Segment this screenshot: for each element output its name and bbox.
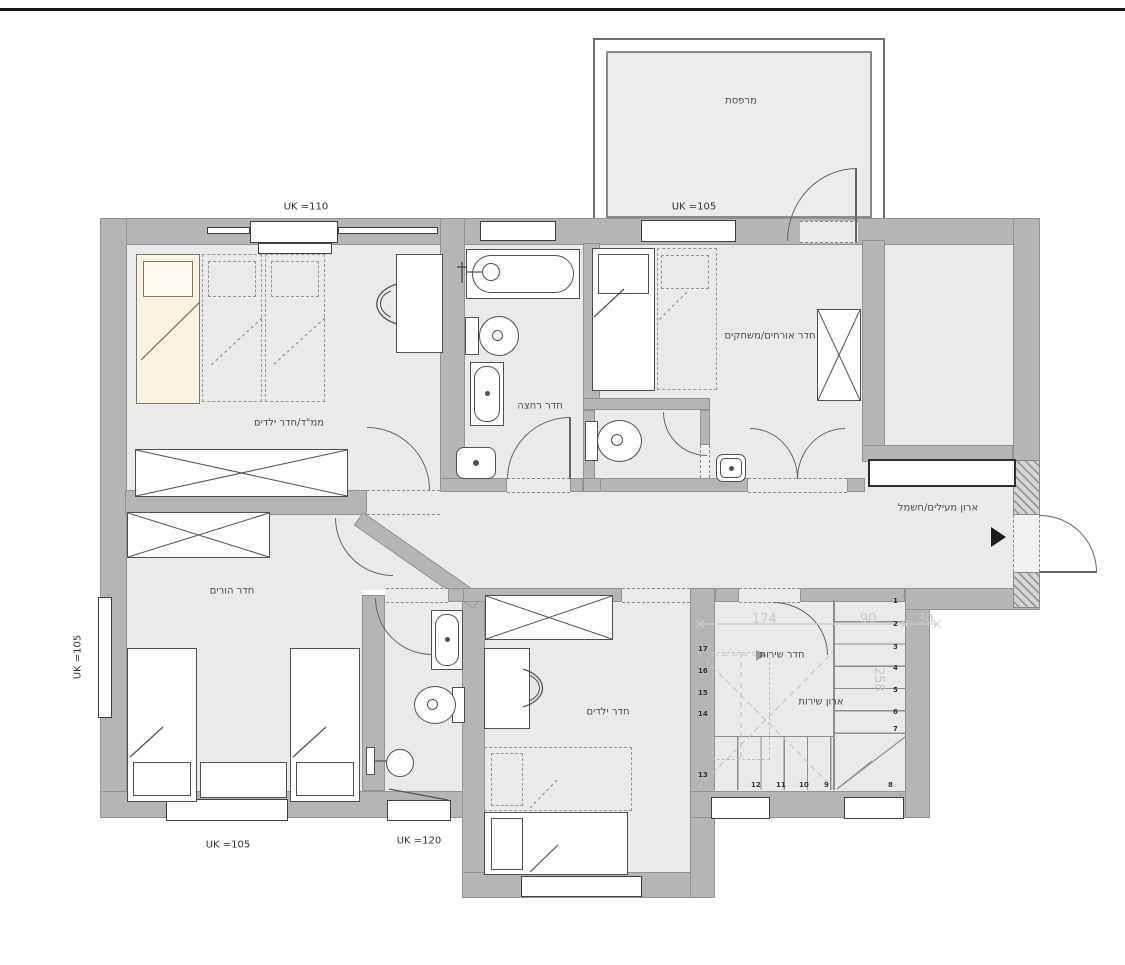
opening-utility-door	[739, 588, 800, 603]
door-leaf-bathroom-top	[569, 417, 571, 479]
window-parents-left	[98, 597, 112, 718]
label-utility-closet: ארון שירות	[798, 697, 843, 708]
stair-number: 3	[893, 643, 898, 651]
sill-label-balcony: UK =105	[672, 202, 717, 213]
dashed-pillow-guest	[661, 255, 709, 289]
sill-label-parents-bottom: UK =105	[206, 840, 251, 851]
wall-kids-left	[462, 600, 485, 898]
toilet-top-dot	[492, 330, 503, 341]
toilet-top-tank	[465, 317, 479, 355]
room-label-balcony: מרפסת	[725, 96, 757, 107]
sill-label-safe-room: UK =110	[284, 202, 329, 213]
shower-tub-top-dot	[485, 391, 490, 396]
stair-number: 17	[698, 645, 708, 653]
room-label-utility-room: חדר שירות	[759, 650, 804, 661]
sink-hallway-dot	[473, 460, 479, 466]
desk-safe-room	[396, 254, 443, 353]
pillow-safe-room	[143, 261, 193, 297]
window-stairs-right	[844, 797, 904, 819]
bathtub-top-faucet	[482, 263, 500, 281]
stair-number: 11	[776, 781, 786, 789]
wall-hatch-above-entry	[1013, 460, 1040, 515]
label-coat-closet: ארון מעילים/חשמל	[898, 503, 978, 514]
wall-bath-bottom-doorstub	[448, 588, 464, 602]
stair-number: 14	[698, 710, 708, 718]
pillow-parents-left	[133, 762, 191, 796]
stair-number: 16	[698, 667, 708, 675]
utility-closet-dashed	[712, 652, 770, 760]
dim-text-174: 174	[752, 612, 777, 627]
stair-number: 4	[893, 664, 898, 672]
pillow-parents-right	[296, 762, 354, 796]
toilet-wc-dot	[611, 434, 623, 446]
void-room-fill	[885, 247, 1007, 447]
dashed-pillow-safe-a	[208, 261, 256, 297]
stair-number: 7	[893, 725, 898, 733]
wall-bath-bottom-right	[570, 478, 583, 492]
wall-bath-bottom-left	[440, 478, 507, 492]
dashed-pillow-safe-b	[271, 261, 319, 297]
wall-left	[100, 218, 127, 818]
stair-number: 8	[888, 781, 893, 789]
window-parents-bottom	[166, 799, 288, 821]
room-label-kids-room: חדר ילדים	[586, 707, 629, 718]
room-label-safe-room: ממ"ד/חדר ילדים	[254, 418, 324, 429]
window-bath-bottom	[387, 800, 451, 821]
dashed-pillow-kids	[491, 753, 523, 806]
sill-label-parents-left: UK =105	[73, 635, 84, 680]
wall-guest-bottom-right	[847, 478, 865, 492]
dim-text-30: 30	[917, 612, 934, 627]
window-guest-room	[641, 220, 736, 242]
top-rule	[0, 8, 1125, 11]
nightstand-parents	[200, 762, 287, 798]
shower-head-bottom	[386, 749, 414, 777]
stair-number: 12	[751, 781, 761, 789]
opening-corridor-kids	[622, 588, 690, 603]
wall-hatch-below-entry	[1013, 572, 1040, 608]
toilet-bottom-dot	[427, 699, 438, 710]
pillow-guest-room	[598, 254, 649, 294]
room-label-bathroom: חדר רחצה	[517, 401, 562, 412]
stair-number: 1	[893, 597, 898, 605]
opening-bathroom-door	[507, 478, 570, 493]
floor-plan-canvas: 1 2 3 4 5 6 7 8 9 10 11 12 13 14 15 16 1…	[0, 0, 1125, 965]
shower-valve-bottom	[366, 747, 375, 775]
door-leaf-balcony	[855, 168, 857, 242]
stair-number: 10	[799, 781, 809, 789]
room-label-parents-room: חדר הורים	[210, 586, 255, 597]
window-safe-room-ac	[258, 243, 332, 254]
stair-number: 9	[824, 781, 829, 789]
stair-number: 13	[698, 771, 708, 779]
desk-kids-room	[484, 648, 530, 729]
opening-guest-double-door	[748, 478, 847, 493]
wall-wc-top	[583, 398, 710, 410]
window-bathroom-top	[480, 221, 556, 241]
stair-number: 2	[893, 620, 898, 628]
opening-safe-room-door	[367, 490, 440, 515]
door-leaf-entry	[1040, 571, 1097, 573]
wall-corridor-stub	[715, 588, 739, 602]
sill-label-bath-bottom: UK =120	[397, 836, 442, 847]
pillow-kids-room	[491, 818, 523, 870]
stair-number: 6	[893, 708, 898, 716]
wardrobe-parents-room	[127, 512, 270, 558]
coat-closet-box	[868, 459, 1016, 487]
wall-right-lower	[905, 595, 930, 818]
wardrobe-kids-room	[485, 595, 613, 640]
stair-number: 15	[698, 689, 708, 697]
tub-bath-bottom-dot	[445, 637, 450, 642]
room-label-guest-room: חדר אורחים/משחקים	[724, 331, 815, 342]
dim-text-90: 90	[860, 612, 877, 627]
window-safe-sill-right	[338, 227, 438, 234]
window-safe-room	[250, 221, 338, 243]
door-arc-entry	[1040, 515, 1097, 572]
window-kids-bottom	[521, 876, 642, 897]
window-safe-sill-left	[207, 227, 250, 234]
wardrobe-safe-room	[135, 449, 348, 497]
dim-text-258: 258	[871, 667, 886, 692]
stair-number: 5	[893, 686, 898, 694]
entry-arrow-icon	[991, 527, 1006, 547]
window-stairs-left	[711, 797, 770, 819]
opening-entry-door	[1013, 515, 1040, 572]
wall-void-left	[862, 240, 885, 462]
wardrobe-guest-room	[817, 309, 861, 401]
sink-guest-hall-dot	[729, 466, 734, 471]
